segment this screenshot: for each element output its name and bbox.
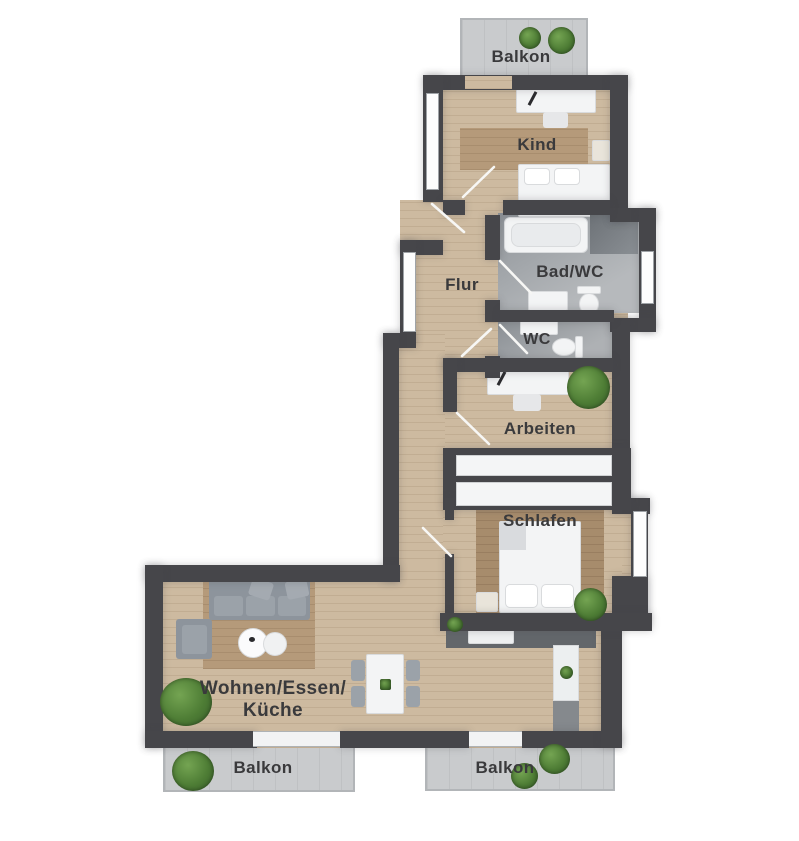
coffee-table-items <box>249 637 255 642</box>
wardrobe-schlafen <box>456 482 612 506</box>
window <box>426 93 439 190</box>
plant <box>560 666 573 679</box>
kind-desk <box>516 86 596 113</box>
wall-segment <box>440 613 652 631</box>
window <box>641 251 654 304</box>
dining-chair <box>406 660 420 681</box>
balcony-door-threshold <box>465 76 512 89</box>
wall-segment <box>145 731 257 748</box>
dining-chair <box>351 660 365 681</box>
dining-centerpiece <box>380 679 391 690</box>
plant <box>519 27 541 49</box>
wall-segment <box>610 75 628 222</box>
floor-plan: Balkon Kind Bad/WC Flur WC Arbeiten Schl… <box>0 0 799 841</box>
plant <box>567 366 610 409</box>
plant <box>548 27 575 54</box>
label-balcony-right: Balkon <box>475 758 534 778</box>
sofa-cushion <box>214 596 243 616</box>
label-balcony-left: Balkon <box>233 758 292 778</box>
kind-desk-chair <box>543 112 568 128</box>
kind-bed-pillow <box>524 168 550 185</box>
wc-toilet-tank <box>575 336 583 358</box>
bathtub-inner <box>511 223 581 247</box>
dining-chair <box>351 686 365 707</box>
wall-segment <box>145 565 400 582</box>
kind-nightstand <box>592 140 610 161</box>
wc-toilet-bowl <box>552 338 576 356</box>
label-living-line2: Küche <box>243 700 303 722</box>
sofa-cushion <box>246 596 275 616</box>
wall-segment <box>485 300 500 322</box>
sliding-door <box>469 731 522 747</box>
dining-chair <box>406 686 420 707</box>
bad-sink <box>528 291 568 311</box>
wardrobe-arbeiten <box>456 455 612 476</box>
schlafen-pillow <box>505 584 538 608</box>
wall-segment <box>445 498 454 520</box>
wall-segment <box>485 215 500 260</box>
kitchen-counter-return-low <box>553 701 579 733</box>
window <box>633 511 647 577</box>
wall-segment <box>145 565 163 748</box>
wall-segment <box>383 333 399 582</box>
arbeiten-chair <box>513 394 541 411</box>
sliding-door <box>253 731 340 747</box>
label-bad-wc: Bad/WC <box>536 262 604 282</box>
kind-bed-pillow <box>554 168 580 185</box>
label-schlafen: Schlafen <box>503 511 577 531</box>
label-wc: WC <box>523 331 550 349</box>
wall-segment <box>443 200 465 215</box>
label-balcony-top: Balkon <box>491 47 550 67</box>
wall-segment <box>340 731 469 748</box>
schlafen-nightstand <box>476 592 498 612</box>
wall-segment <box>503 200 610 215</box>
schlafen-pillow <box>541 584 574 608</box>
window <box>403 252 416 332</box>
plant <box>574 588 607 621</box>
armchair-cushion <box>182 625 207 654</box>
plant <box>447 617 463 632</box>
label-living-line1: Wohnen/Essen/ <box>200 678 346 700</box>
wall-segment <box>443 358 457 412</box>
wall-segment <box>425 75 628 90</box>
wall-segment <box>445 554 454 622</box>
label-kind: Kind <box>517 135 556 155</box>
coffee-table <box>263 632 287 656</box>
wall-segment <box>500 310 614 322</box>
wall-segment <box>601 620 622 748</box>
plant <box>172 751 214 791</box>
plant <box>539 744 570 774</box>
label-arbeiten: Arbeiten <box>504 419 576 439</box>
label-flur: Flur <box>445 275 479 295</box>
